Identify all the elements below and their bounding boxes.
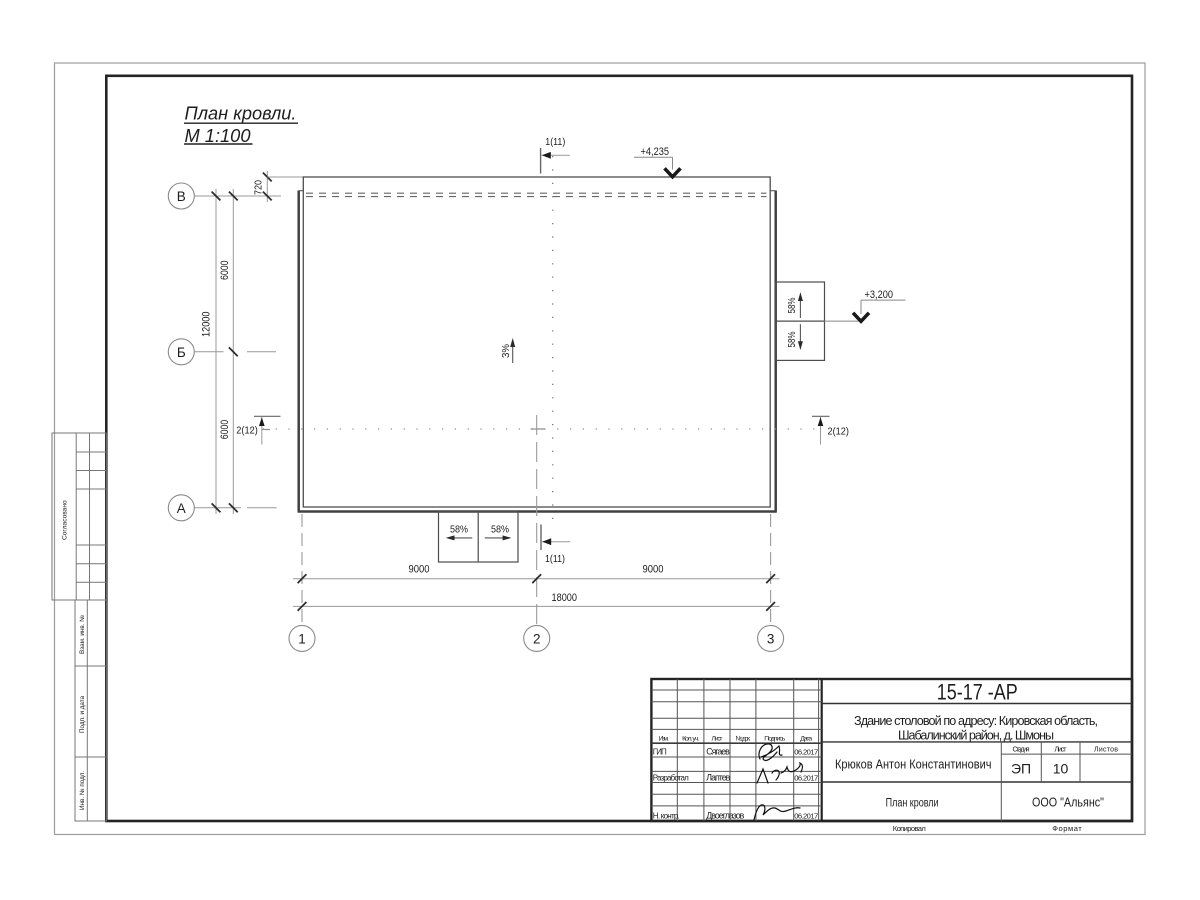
- svg-text:06.2017: 06.2017: [794, 747, 818, 756]
- svg-text:Здание столовой по адресу: Кир: Здание столовой по адресу: Кировская обл…: [854, 714, 1098, 728]
- svg-text:9000: 9000: [643, 563, 664, 575]
- svg-text:1(11): 1(11): [545, 137, 565, 148]
- svg-text:Кол. уч.: Кол. уч.: [682, 736, 699, 743]
- svg-text:Дата: Дата: [800, 736, 812, 743]
- svg-text:Формат: Формат: [1052, 824, 1082, 833]
- svg-text:06.2017: 06.2017: [794, 773, 818, 782]
- svg-text:Подпись: Подпись: [764, 736, 785, 743]
- svg-text:Подп. и дата: Подп. и дата: [79, 695, 86, 733]
- svg-text:720: 720: [252, 180, 264, 195]
- svg-text:План кровли.: План кровли.: [185, 104, 297, 124]
- svg-text:М 1:100: М 1:100: [185, 126, 251, 146]
- svg-text:Двоеглазов: Двоеглазов: [706, 811, 744, 821]
- svg-text:Лист: Лист: [1055, 746, 1068, 753]
- svg-text:Разработал: Разработал: [653, 773, 689, 782]
- svg-text:9000: 9000: [409, 563, 430, 575]
- svg-text:Лист: Лист: [712, 736, 723, 743]
- svg-text:2: 2: [533, 631, 541, 646]
- svg-text:06.2017: 06.2017: [794, 811, 818, 820]
- svg-text:А: А: [177, 501, 186, 516]
- svg-text:10: 10: [1053, 761, 1069, 777]
- svg-text:Согласовано: Согласовано: [62, 500, 69, 540]
- svg-text:Стадия: Стадия: [1013, 746, 1030, 753]
- svg-text:План кровли: План кровли: [886, 797, 939, 809]
- svg-text:58%: 58%: [786, 332, 798, 348]
- svg-text:6000: 6000: [219, 261, 231, 281]
- svg-text:Шабалинский район, д. Шмоны: Шабалинский район, д. Шмоны: [898, 728, 1054, 742]
- svg-text:Сягаев: Сягаев: [706, 747, 730, 757]
- svg-text:В: В: [177, 189, 186, 204]
- svg-text:Инв. № подл.: Инв. № подл.: [79, 771, 86, 810]
- svg-text:+4,235: +4,235: [641, 146, 670, 158]
- svg-text:№ док.: № док.: [736, 736, 751, 743]
- svg-text:Листов: Листов: [1094, 746, 1118, 753]
- svg-text:58%: 58%: [450, 524, 468, 536]
- svg-text:1: 1: [298, 631, 306, 646]
- svg-text:+3,200: +3,200: [865, 289, 894, 301]
- svg-text:Лаптев: Лаптев: [706, 773, 730, 783]
- svg-text:6000: 6000: [219, 420, 231, 440]
- svg-text:ООО "Альянс": ООО "Альянс": [1032, 794, 1104, 809]
- svg-text:ГИП: ГИП: [653, 747, 667, 756]
- svg-text:Н. контр.: Н. контр.: [653, 811, 680, 820]
- svg-text:Изм.: Изм.: [659, 736, 669, 743]
- svg-text:1(11): 1(11): [545, 554, 565, 565]
- svg-text:58%: 58%: [491, 524, 509, 536]
- svg-text:Взам. инв. №: Взам. инв. №: [79, 615, 86, 654]
- svg-text:2(12): 2(12): [236, 426, 257, 437]
- svg-text:12000: 12000: [201, 312, 213, 338]
- svg-text:Копировал: Копировал: [893, 824, 926, 833]
- svg-text:3: 3: [767, 631, 775, 646]
- svg-text:58%: 58%: [786, 298, 798, 314]
- svg-text:2(12): 2(12): [828, 427, 850, 438]
- svg-text:Б: Б: [177, 345, 186, 360]
- svg-text:3%: 3%: [500, 344, 512, 358]
- svg-text:Крюков Антон Константинович: Крюков Антон Константинович: [835, 756, 992, 771]
- svg-text:15-17 -АР: 15-17 -АР: [937, 680, 1018, 705]
- svg-text:ЭП: ЭП: [1011, 761, 1031, 777]
- svg-text:18000: 18000: [552, 592, 578, 604]
